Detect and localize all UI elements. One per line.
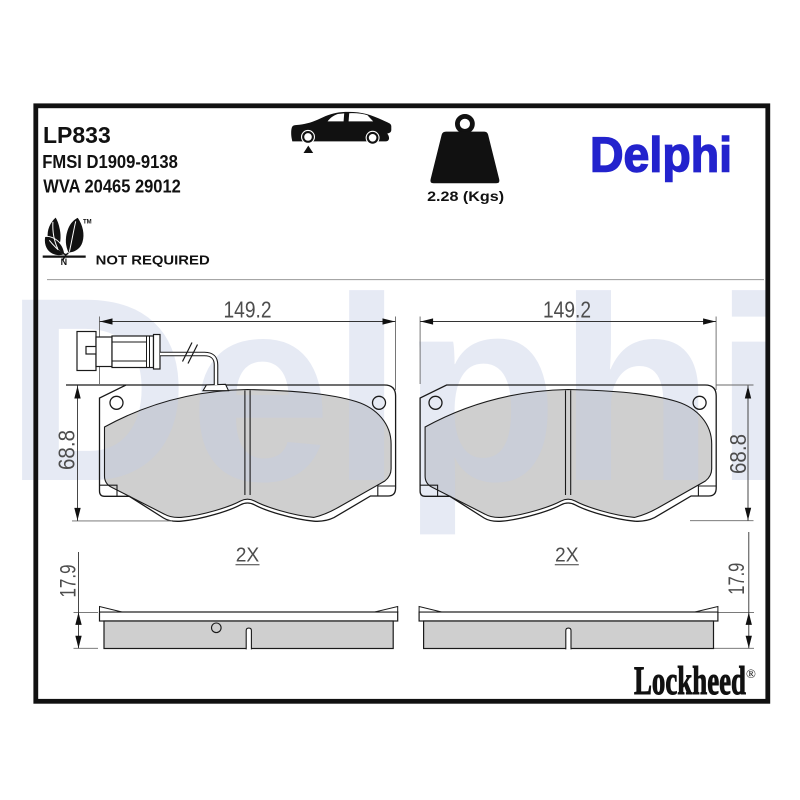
- svg-text:68.8: 68.8: [725, 434, 751, 474]
- svg-text:17.9: 17.9: [724, 563, 749, 595]
- svg-text:WVA 20465 29012: WVA 20465 29012: [43, 177, 181, 197]
- svg-text:NOT REQUIRED: NOT REQUIRED: [96, 253, 210, 268]
- svg-text:Lockheed: Lockheed: [634, 658, 746, 703]
- svg-text:2.28 (Kgs): 2.28 (Kgs): [427, 189, 504, 204]
- svg-text:68.8: 68.8: [53, 430, 79, 470]
- svg-text:17.9: 17.9: [56, 565, 81, 598]
- svg-text:149.2: 149.2: [543, 297, 591, 323]
- svg-text:LP833: LP833: [43, 122, 111, 148]
- svg-text:N: N: [61, 257, 68, 267]
- svg-text:FMSI D1909-9138: FMSI D1909-9138: [42, 152, 178, 172]
- svg-text:2X: 2X: [236, 545, 260, 567]
- svg-text:Delphi: Delphi: [590, 129, 732, 183]
- svg-text:149.2: 149.2: [224, 297, 272, 323]
- svg-text:®: ®: [746, 666, 756, 681]
- svg-text:2X: 2X: [555, 545, 579, 567]
- svg-text:TM: TM: [83, 220, 92, 226]
